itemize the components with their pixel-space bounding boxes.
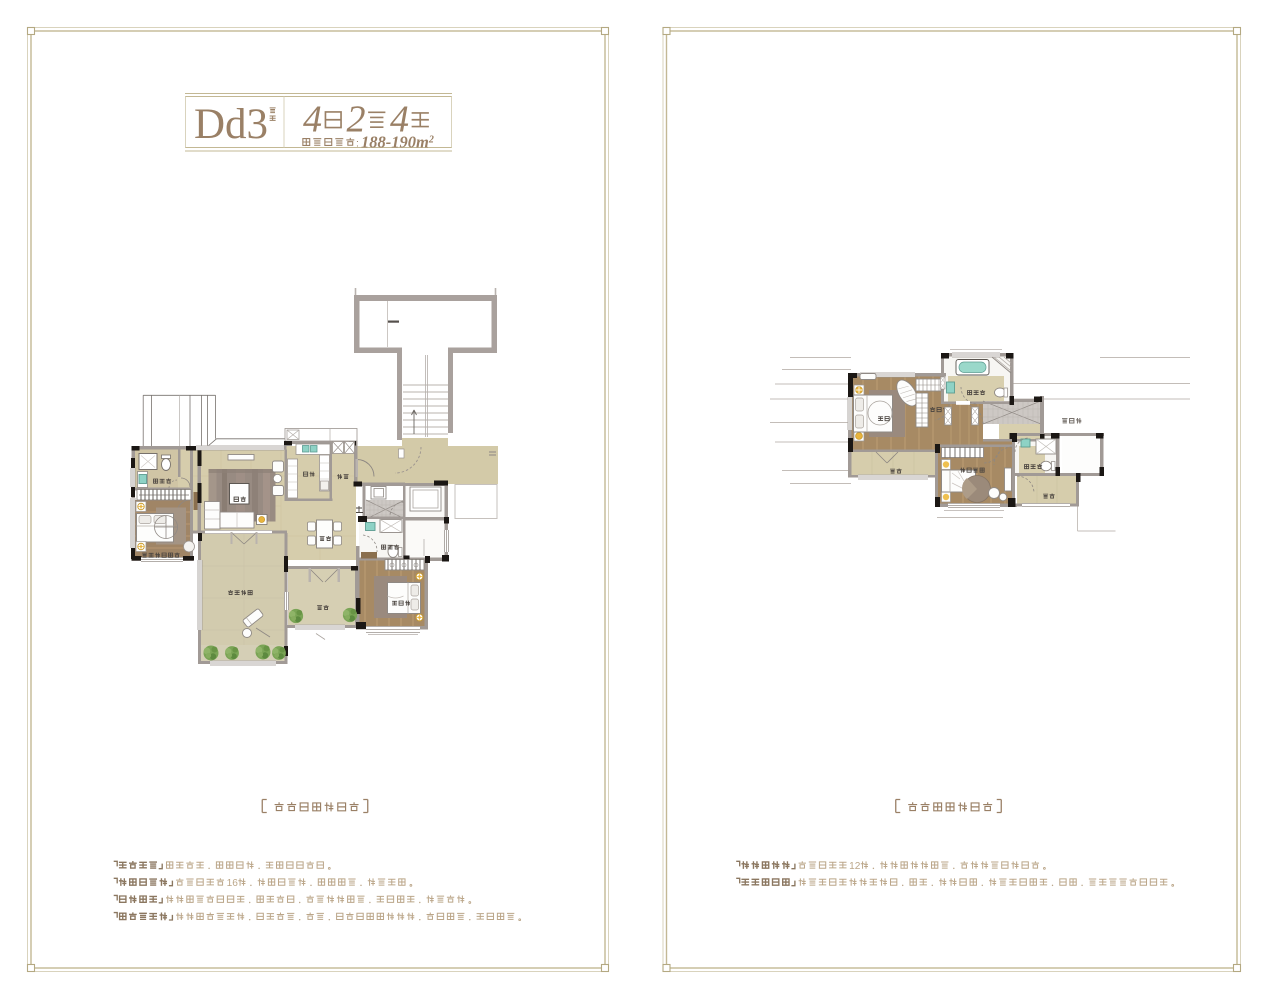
svg-text::: :	[356, 138, 359, 150]
svg-text:Dd3: Dd3	[194, 101, 268, 148]
svg-text:4: 4	[303, 99, 322, 141]
svg-text:188-190m2: 188-190m2	[361, 133, 434, 152]
svg-text:12: 12	[849, 861, 861, 872]
svg-text:16: 16	[227, 878, 239, 889]
